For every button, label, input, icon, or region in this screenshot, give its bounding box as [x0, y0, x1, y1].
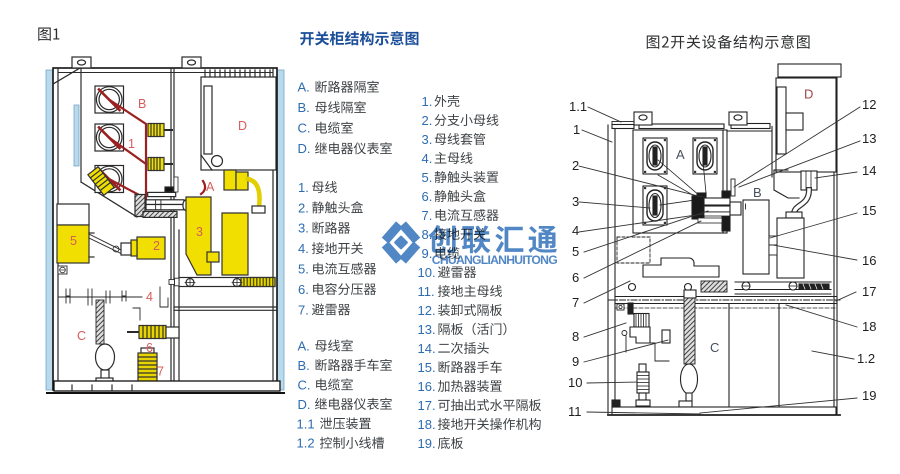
svg-text:CHUANGLIANHUITONG: CHUANGLIANHUITONG [432, 253, 557, 267]
